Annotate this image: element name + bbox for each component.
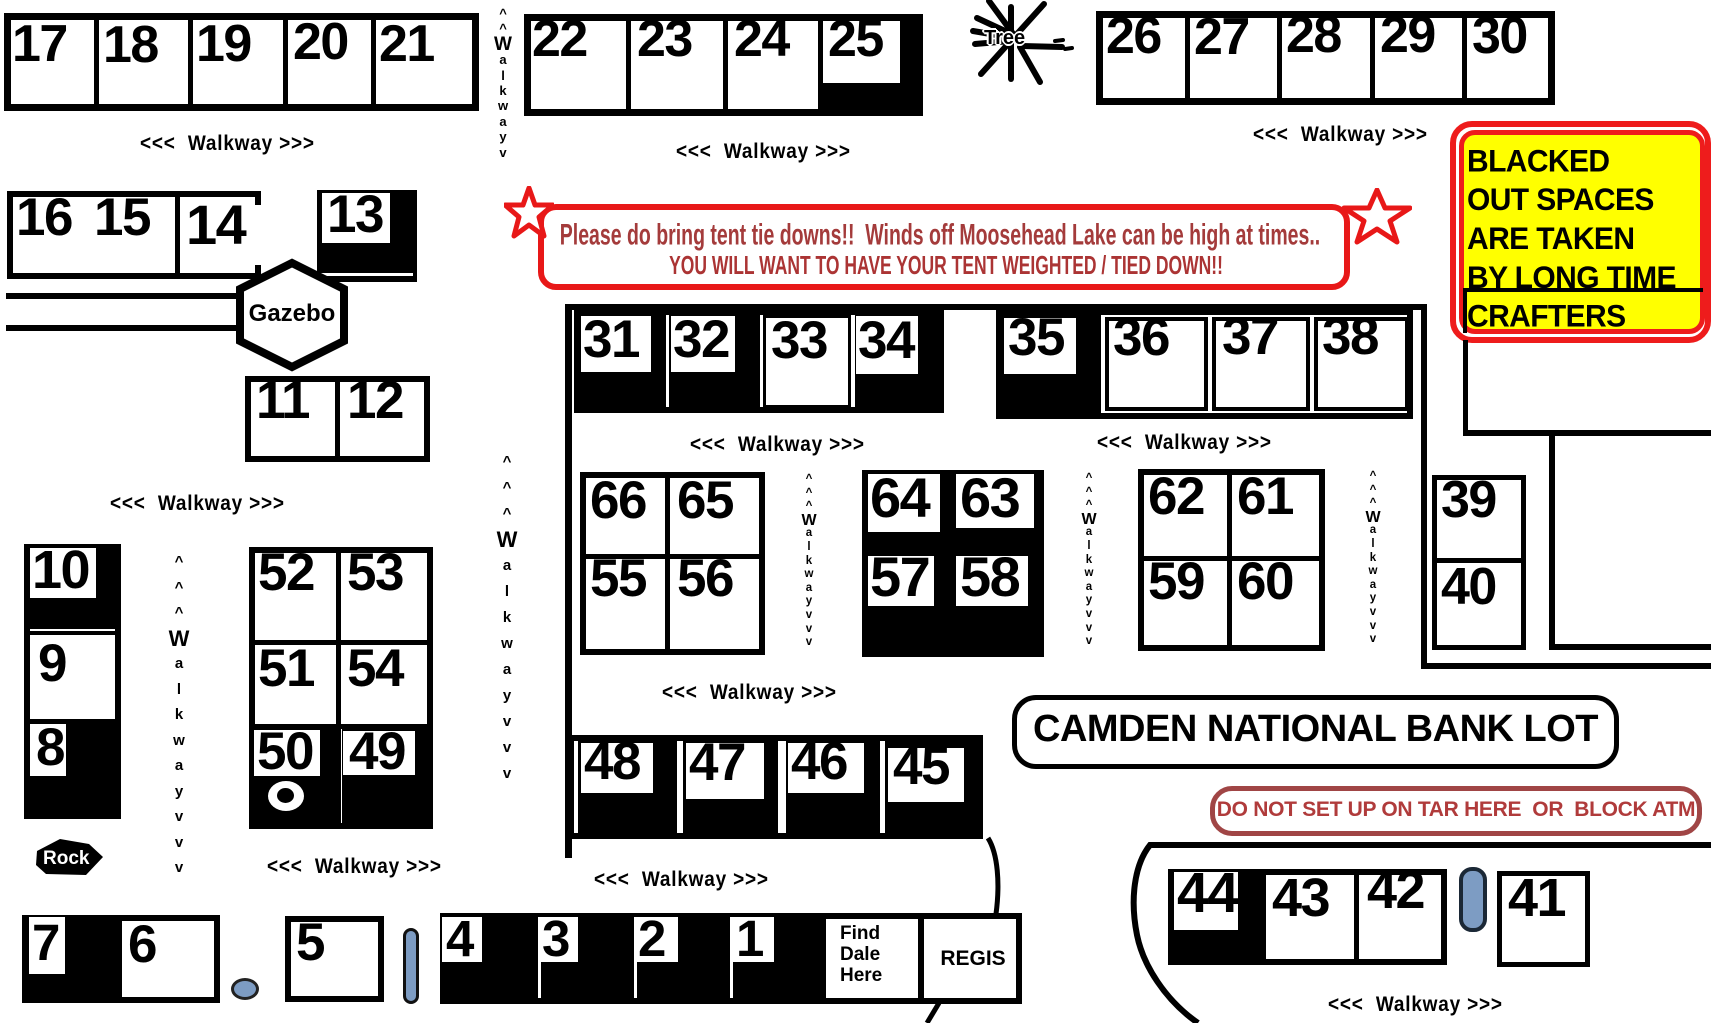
svg-text:Rock: Rock: [43, 848, 90, 869]
svg-text:Gazebo: Gazebo: [249, 300, 336, 327]
